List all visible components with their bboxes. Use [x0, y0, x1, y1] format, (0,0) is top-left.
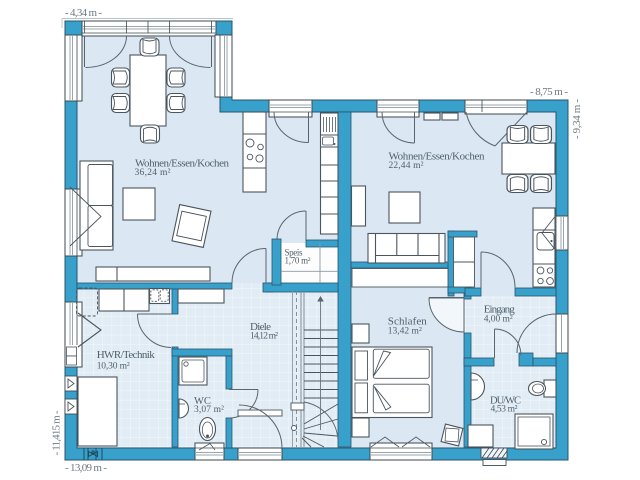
svg-text:10,30 m²: 10,30 m² — [97, 362, 130, 372]
svg-text:HWR/Technik: HWR/Technik — [97, 349, 156, 361]
svg-text:- 8,75 m -: - 8,75 m - — [530, 86, 568, 98]
svg-text:- 13,09 m -: - 13,09 m - — [65, 462, 107, 474]
svg-text:36,24 m²: 36,24 m² — [135, 168, 171, 178]
svg-text:22,44 m²: 22,44 m² — [389, 161, 424, 171]
svg-text:- 9,34 m -: - 9,34 m - — [571, 99, 583, 139]
svg-text:3,07 m²: 3,07 m² — [194, 405, 224, 415]
svg-text:- 11,415 m -: - 11,415 m - — [51, 410, 63, 455]
svg-text:14,12 m²: 14,12 m² — [250, 332, 278, 342]
svg-text:13,42 m²: 13,42 m² — [388, 327, 422, 337]
svg-text:1,70 m²: 1,70 m² — [285, 256, 311, 266]
svg-text:- 4,34 m -: - 4,34 m - — [65, 7, 102, 19]
svg-text:4,53 m²: 4,53 m² — [491, 405, 518, 415]
svg-text:4,00 m²: 4,00 m² — [484, 315, 513, 325]
